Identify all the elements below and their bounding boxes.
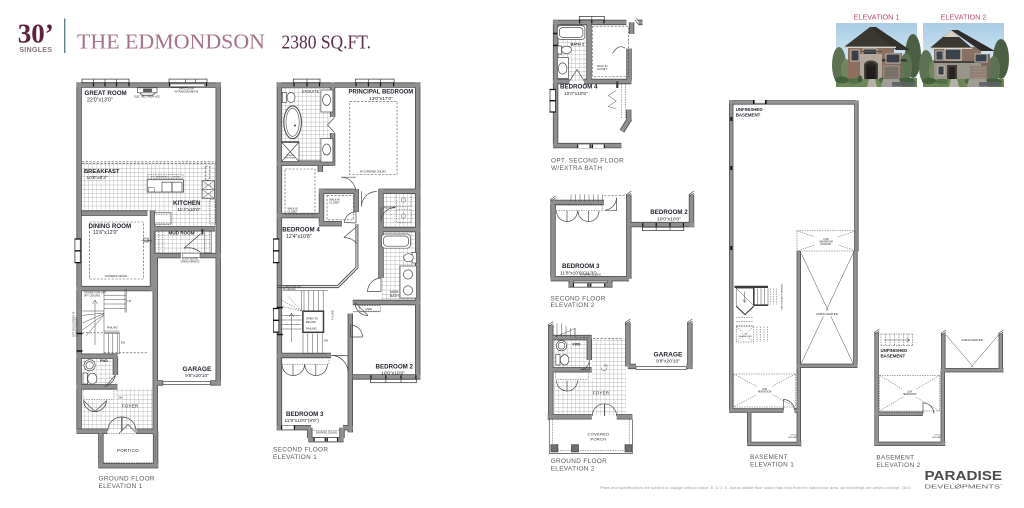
- svg-text:DOOR WHERE: DOOR WHERE: [182, 258, 199, 260]
- svg-text:DEVELØPMENTS´: DEVELØPMENTS´: [925, 485, 1004, 491]
- svg-text:BATH: BATH: [390, 294, 399, 298]
- svg-text:12'4"x10'8": 12'4"x10'8": [286, 234, 312, 240]
- svg-text:LOW: LOW: [762, 389, 768, 391]
- svg-text:LAUNDRY: LAUNDRY: [382, 206, 398, 210]
- svg-text:LOW: LOW: [823, 239, 829, 241]
- svg-text:CLOSET: CLOSET: [330, 201, 340, 204]
- svg-text:UNEXCAVATED: UNEXCAVATED: [961, 338, 984, 342]
- svg-text:FOYER: FOYER: [122, 404, 139, 409]
- svg-text:BASEMENT: BASEMENT: [736, 113, 761, 118]
- svg-text:PARADISE: PARADISE: [925, 469, 1003, 483]
- svg-text:ELEVATION 1: ELEVATION 1: [99, 483, 143, 490]
- svg-text:DROPPED CEILING: DROPPED CEILING: [580, 275, 601, 277]
- svg-text:BEDROOM 3: BEDROOM 3: [286, 411, 324, 418]
- svg-text:BREAKFAST: BREAKFAST: [84, 169, 120, 175]
- svg-text:W/EXTRA BATH: W/EXTRA BATH: [551, 165, 602, 172]
- svg-text:CELLAR: CELLAR: [788, 436, 797, 439]
- svg-text:ELEVATION 2: ELEVATION 2: [941, 15, 987, 22]
- svg-text:CLOSET: CLOSET: [597, 68, 607, 71]
- svg-text:ELEVATION 2: ELEVATION 2: [551, 302, 595, 309]
- svg-text:BEDROOM 4: BEDROOM 4: [282, 227, 320, 234]
- svg-text:UNFINISHED: UNFINISHED: [881, 348, 908, 353]
- svg-text:10'0"x10'8": 10'0"x10'8": [564, 91, 588, 97]
- svg-text:LINEN: LINEN: [365, 308, 372, 311]
- svg-text:FOYER: FOYER: [593, 391, 610, 396]
- svg-text:9F COFFERED CEILING: 9F COFFERED CEILING: [360, 172, 386, 174]
- svg-text:PRINCIPAL BEDROOM: PRINCIPAL BEDROOM: [349, 90, 414, 96]
- svg-text:BEDROOM 4: BEDROOM 4: [560, 83, 598, 90]
- svg-text:BATH 2: BATH 2: [571, 42, 584, 46]
- svg-text:GREAT ROOM: GREAT ROOM: [85, 90, 127, 97]
- svg-text:OPT. SECOND FLOOR: OPT. SECOND FLOOR: [551, 158, 624, 165]
- svg-text:BASEMENT: BASEMENT: [750, 454, 788, 461]
- svg-text:UP: UP: [128, 299, 132, 303]
- svg-text:CANTILEVER STAIRWELL: CANTILEVER STAIRWELL: [781, 282, 784, 309]
- svg-text:RAILING: RAILING: [107, 326, 118, 330]
- svg-text:10'8"x8'2": 10'8"x8'2": [87, 175, 108, 181]
- svg-text:ELEVATION 1: ELEVATION 1: [273, 454, 317, 461]
- svg-text:2380 SQ.FT.: 2380 SQ.FT.: [282, 33, 372, 54]
- svg-text:HEADROOM: HEADROOM: [903, 393, 917, 396]
- svg-text:W/TRANSOM ABOVE: W/TRANSOM ABOVE: [175, 91, 199, 94]
- svg-text:GARAGE: GARAGE: [654, 351, 684, 358]
- svg-text:BASEMENT: BASEMENT: [881, 353, 906, 358]
- svg-text:10'0"x10'0": 10'0"x10'0": [657, 216, 681, 222]
- svg-text:11'8"x10'0"(9'0"): 11'8"x10'0"(9'0"): [285, 418, 320, 424]
- svg-text:RAILING: RAILING: [306, 327, 317, 331]
- svg-text:GROUND FLOOR: GROUND FLOOR: [551, 458, 607, 465]
- svg-text:STEPS FOR OPT.: STEPS FOR OPT.: [283, 287, 302, 289]
- svg-text:ELEVATION 1: ELEVATION 1: [750, 462, 794, 469]
- svg-text:BEDROOM 3: BEDROOM 3: [562, 263, 600, 270]
- svg-text:9FT CEILING: 9FT CEILING: [84, 294, 100, 298]
- svg-text:CLOSET: CLOSET: [288, 211, 298, 214]
- svg-text:HEADROOM: HEADROOM: [819, 241, 833, 244]
- svg-text:PORCH: PORCH: [591, 437, 607, 442]
- svg-text:UN-EXCD.: UN-EXCD.: [820, 244, 831, 246]
- svg-text:PORTICO: PORTICO: [117, 448, 139, 453]
- svg-text:10'0"x10'0": 10'0"x10'0": [381, 371, 405, 377]
- svg-text:SECOND FLOOR: SECOND FLOOR: [273, 447, 328, 454]
- svg-text:11'4"x10'0": 11'4"x10'0": [177, 207, 201, 213]
- svg-text:11'6"x12'0": 11'6"x12'0": [93, 230, 118, 236]
- svg-text:CELLAR: CELLAR: [932, 436, 941, 439]
- svg-text:HEADROOM: HEADROOM: [758, 391, 772, 394]
- svg-text:BELOW: BELOW: [306, 320, 316, 324]
- svg-text:KITCHEN: KITCHEN: [173, 200, 201, 207]
- svg-text:ELEVATION 2: ELEVATION 2: [551, 465, 595, 472]
- svg-text:GLASS: GLASS: [286, 154, 294, 157]
- svg-text:GRADE PERMITS: GRADE PERMITS: [180, 260, 199, 263]
- svg-text:GARAGE: GARAGE: [183, 366, 213, 373]
- svg-text:DH: DH: [119, 396, 123, 400]
- svg-text:DINING ROOM: DINING ROOM: [89, 223, 132, 230]
- svg-text:SINGLES: SINGLES: [19, 45, 52, 54]
- svg-text:ELECTRIC FIREPLACE: ELECTRIC FIREPLACE: [134, 96, 160, 99]
- svg-text:UNFINISHED: UNFINISHED: [736, 107, 763, 112]
- svg-text:LOW: LOW: [907, 391, 913, 393]
- svg-text:DN: DN: [324, 339, 328, 343]
- svg-text:PWD: PWD: [100, 359, 108, 363]
- svg-text:BEDROOM 2: BEDROOM 2: [650, 209, 688, 216]
- svg-text:HEADROOM: HEADROOM: [739, 335, 752, 338]
- svg-text:DN: DN: [604, 365, 608, 368]
- svg-text:COFFERED CEILING: COFFERED CEILING: [105, 276, 128, 278]
- svg-text:DN: DN: [121, 341, 125, 345]
- svg-text:9'8"x20'10": 9'8"x20'10": [185, 373, 209, 379]
- svg-text:ENSUITE: ENSUITE: [302, 89, 320, 94]
- svg-text:BEDROOM 2: BEDROOM 2: [376, 363, 414, 370]
- svg-text:EXT. BREAKFAST COUNTER: EXT. BREAKFAST COUNTER: [151, 175, 181, 178]
- svg-text:30’: 30’: [18, 18, 54, 48]
- svg-text:FLR.(9'0): FLR.(9'0): [332, 310, 335, 320]
- svg-text:DROPPED CEILING: DROPPED CEILING: [316, 432, 337, 434]
- svg-text:COLD: COLD: [790, 435, 796, 437]
- svg-text:COLD: COLD: [934, 435, 940, 437]
- svg-text:SHOWER: SHOWER: [285, 158, 295, 160]
- svg-text:MUD ROOM: MUD ROOM: [169, 231, 195, 236]
- svg-text:9'8"x20'10": 9'8"x20'10": [656, 358, 680, 364]
- svg-text:Plans and specifications are s: Plans and specifications are subject to …: [600, 486, 911, 490]
- svg-text:22'0"x13'0": 22'0"x13'0": [87, 98, 113, 104]
- svg-text:OH-B: OH-B: [143, 239, 149, 241]
- svg-text:13'0"x17'0": 13'0"x17'0": [369, 96, 393, 102]
- svg-text:MWD: MWD: [143, 241, 149, 243]
- svg-text:ELEVATION 1: ELEVATION 1: [854, 15, 900, 22]
- svg-text:GROUND FLOOR: GROUND FLOOR: [99, 476, 155, 483]
- svg-text:THE EDMONDSON: THE EDMONDSON: [77, 30, 265, 54]
- svg-text:UNEXCAVATED: UNEXCAVATED: [816, 312, 839, 316]
- svg-text:BASEMENT: BASEMENT: [876, 454, 914, 461]
- svg-text:ELEVATION 2: ELEVATION 2: [876, 462, 920, 469]
- svg-text:PWD: PWD: [573, 342, 581, 346]
- svg-text:9F CEILING: 9F CEILING: [283, 289, 296, 291]
